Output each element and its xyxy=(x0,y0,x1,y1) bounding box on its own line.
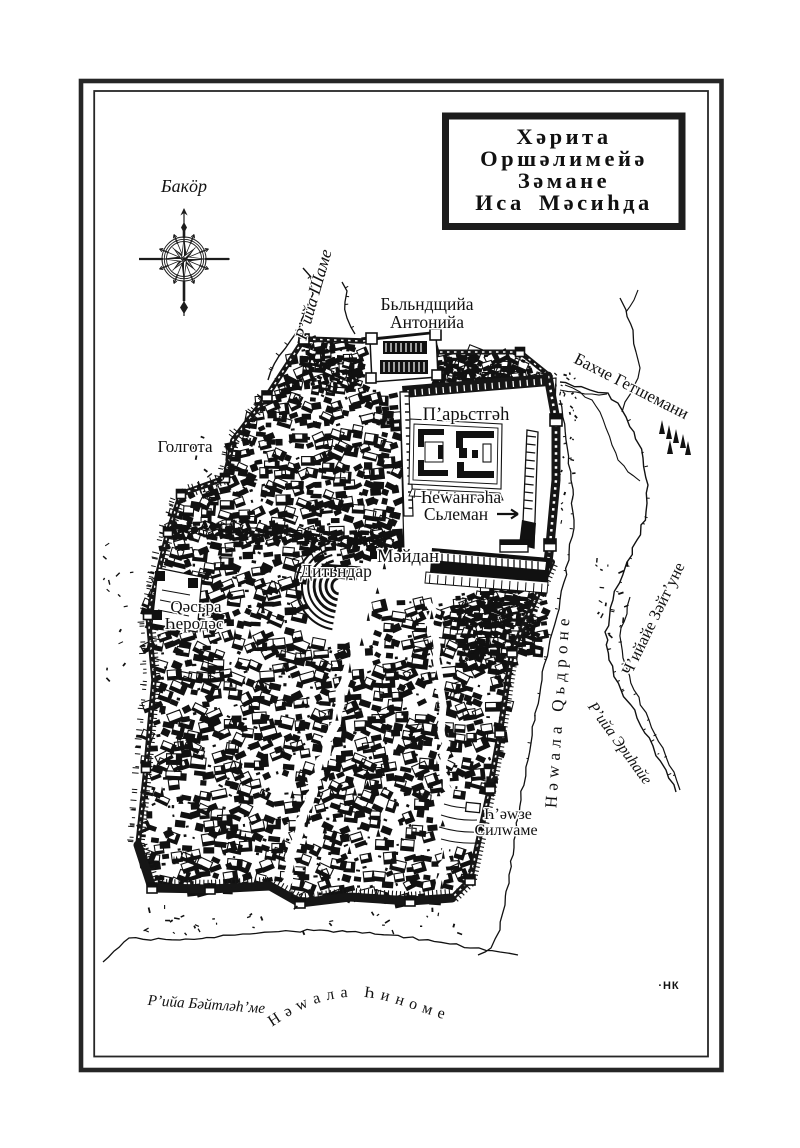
svg-text:Дитьндар: Дитьндар xyxy=(300,561,372,581)
svg-text:Иса Мәсиһда: Иса Мәсиһда xyxy=(475,190,652,215)
svg-text:Голгота: Голгота xyxy=(157,437,213,456)
svg-text:Сьлеман: Сьлеман xyxy=(424,504,488,524)
svg-text:·НК: ·НК xyxy=(658,980,679,992)
svg-text:Силwаме: Силwаме xyxy=(474,822,537,839)
svg-text:Һ’әwзе: Һ’әwзе xyxy=(484,806,532,823)
svg-text:Бьльндщийа: Бьльндщийа xyxy=(381,294,474,314)
svg-text:Мәйдан: Мәйдан xyxy=(377,547,439,567)
svg-text:П’арьстгәһ: П’арьстгәһ xyxy=(423,405,510,425)
svg-text:Бакӧр: Бакӧр xyxy=(160,176,207,196)
svg-text:Антонийа: Антонийа xyxy=(390,312,464,332)
svg-text:Һеродәс: Һеродәс xyxy=(165,614,224,633)
